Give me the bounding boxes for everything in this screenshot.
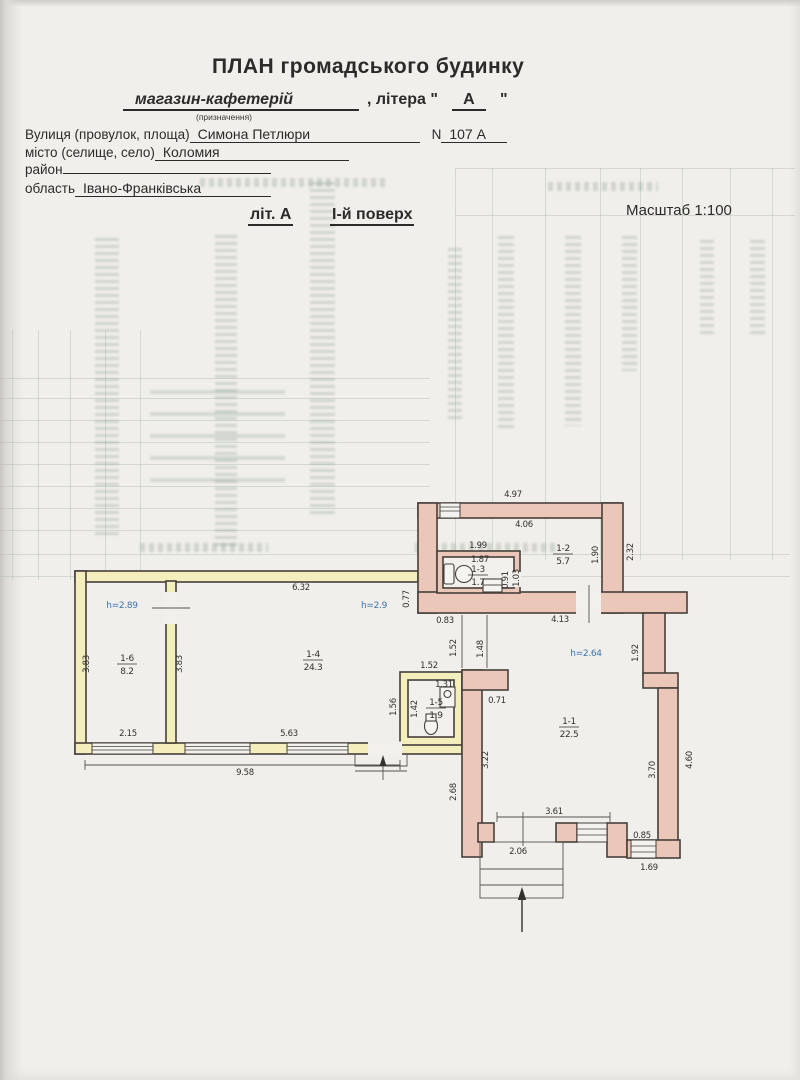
dimension-label: 3.61 <box>545 807 563 817</box>
dimension-label: 0.85 <box>633 831 651 841</box>
svg-text:8.2: 8.2 <box>120 667 133 677</box>
dimension-label: 1.52 <box>420 661 438 671</box>
svg-text:1.7: 1.7 <box>471 578 484 588</box>
room-label-1-2: 1-25.7 <box>553 544 573 567</box>
dimension-label: 3.22 <box>481 751 491 769</box>
ceiling-height-label: h=2.89 <box>106 601 138 611</box>
dimension-label: 0.83 <box>436 616 454 626</box>
dimension-label: 1.69 <box>640 863 658 873</box>
svg-text:1.9: 1.9 <box>429 711 443 721</box>
dimension-label: 1.99 <box>469 541 487 551</box>
room-label-1-6: 1-68.2 <box>117 654 137 677</box>
dimension-label: 3.83 <box>175 655 185 673</box>
dimension-label: 2.06 <box>509 847 527 857</box>
dimension-label: 4.60 <box>685 751 695 769</box>
dimension-label: 5.63 <box>280 729 298 739</box>
svg-text:1-4: 1-4 <box>306 650 320 660</box>
dimension-label: 4.13 <box>551 615 569 625</box>
dimension-label: 1.56 <box>389 698 399 716</box>
dimension-label: 0.77 <box>402 590 412 608</box>
ceiling-height-label: h=2.9 <box>361 601 388 611</box>
dimension-label: 4.06 <box>515 520 533 530</box>
svg-text:24.3: 24.3 <box>304 663 323 673</box>
room-label-1-1: 1-122.5 <box>559 717 579 740</box>
dimension-label: 0.71 <box>488 696 506 706</box>
svg-text:1-6: 1-6 <box>120 654 134 664</box>
dimension-label: 1.87 <box>471 555 489 565</box>
dimension-label: 2.32 <box>626 543 636 561</box>
ceiling-height-label: h=2.64 <box>570 649 602 659</box>
dimension-label: 6.32 <box>292 583 310 593</box>
scanned-floor-plan-document: ПЛАН громадського будинку магазин-кафете… <box>0 0 800 1080</box>
floor-plan-svg: 4.974.061.991.870.911.031.902.320.770.83… <box>0 0 800 1080</box>
dimension-label: 1.42 <box>410 700 420 718</box>
svg-text:1-2: 1-2 <box>556 544 570 554</box>
svg-text:1-1: 1-1 <box>562 717 576 727</box>
svg-text:1-3: 1-3 <box>471 565 485 575</box>
dimension-label: 1.52 <box>449 639 459 657</box>
dimension-label: 2.15 <box>119 729 137 739</box>
dimension-label: 1.92 <box>631 644 641 662</box>
dimension-label: 2.68 <box>449 783 459 801</box>
svg-text:1-5: 1-5 <box>429 698 443 708</box>
dimension-label: 0.91 <box>501 571 511 589</box>
dimension-label: 9.58 <box>236 768 254 778</box>
dimension-label: 1.48 <box>476 640 486 658</box>
svg-text:5.7: 5.7 <box>556 557 569 567</box>
dimension-label: 1.31 <box>435 680 453 690</box>
room-label-1-4: 1-424.3 <box>303 650 323 673</box>
dimension-label: 1.90 <box>591 546 601 564</box>
svg-text:22.5: 22.5 <box>560 730 579 740</box>
dimension-label: 4.97 <box>504 490 522 500</box>
dimension-label: 3.83 <box>82 655 92 673</box>
dimension-label: 3.70 <box>648 761 658 779</box>
dimension-label: 1.03 <box>512 569 522 587</box>
